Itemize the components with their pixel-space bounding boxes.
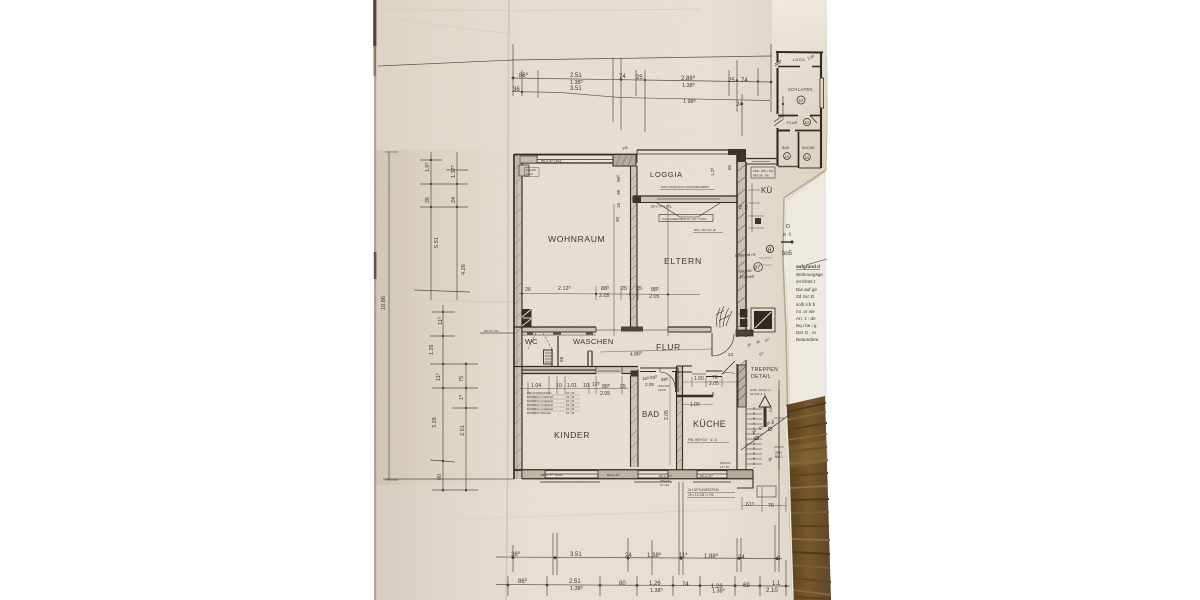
svg-text:1.00: 1.00	[694, 376, 704, 382]
svg-text:10: 10	[583, 383, 589, 389]
svg-text:3.51: 3.51	[570, 552, 582, 558]
svg-text:DETAIL: DETAIL	[751, 374, 771, 380]
svg-text:985 OK. FB: 985 OK. FB	[753, 174, 769, 178]
svg-text:10: 10	[798, 98, 803, 103]
svg-text:5.51: 5.51	[434, 237, 440, 248]
svg-text:75: 75	[744, 205, 749, 210]
svg-text:15 / 41: 15 / 41	[566, 395, 575, 399]
svg-text:2.05: 2.05	[645, 382, 654, 387]
svg-text:bo5: bo5	[782, 251, 793, 257]
svg-text:2.51: 2.51	[569, 579, 581, 585]
svg-text:BR-H. 87⁵ HKOL: BR-H. 87⁵ HKOL	[541, 159, 562, 163]
svg-text:24: 24	[451, 197, 457, 203]
svg-text:KÜ: KÜ	[761, 186, 772, 195]
svg-text:BR-H. 87⁵ HKOL: BR-H. 87⁵ HKOL	[651, 205, 672, 209]
svg-text:80: 80	[437, 474, 443, 480]
svg-text:WS + DO 12 / 20: WS + DO 12 / 20	[694, 228, 716, 232]
svg-text:BODBECH 4-GESCH: BODBECH 4-GESCH	[527, 407, 553, 411]
svg-text:BODBECH 2-GESCH: BODBECH 2-GESCH	[527, 399, 553, 403]
svg-text:86: 86	[770, 419, 775, 424]
svg-text:Bq i be i g: Bq i be i g	[796, 323, 817, 328]
svg-text:Bau9rd: Bau9rd	[738, 268, 751, 274]
svg-text:BAD: BAD	[782, 146, 790, 150]
svg-text:15 / 43: 15 / 43	[566, 403, 575, 407]
svg-text:2.05: 2.05	[600, 391, 610, 397]
svg-text:10.86: 10.86	[381, 296, 387, 310]
svg-text:LOGGIA: LOGGIA	[650, 170, 683, 179]
svg-text:aufgrund d: aufgrund d	[796, 264, 820, 269]
svg-text:BAD: BAD	[642, 410, 659, 419]
svg-text:25: 25	[620, 384, 626, 390]
svg-text:BODBECH 1-GESCH: BODBECH 1-GESCH	[527, 395, 553, 399]
svg-text:mi .or we: mi .or we	[796, 309, 815, 314]
svg-text:KÜCHE: KÜCHE	[693, 419, 726, 429]
svg-text:D: D	[786, 224, 790, 230]
svg-text:12 / 20: 12 / 20	[660, 483, 669, 487]
svg-text:SCHLAFEN: SCHLAFEN	[788, 87, 813, 92]
svg-text:87: 87	[754, 266, 760, 272]
svg-text:2.05: 2.05	[649, 294, 660, 300]
svg-text:KINDER: KINDER	[554, 430, 590, 440]
svg-text:10: 10	[804, 120, 809, 125]
svg-text:Zd zur Zi: Zd zur Zi	[796, 294, 814, 299]
svg-text:2.51: 2.51	[460, 425, 466, 436]
svg-text:AUFLAGERSTEIN 24 / 49 / 75 DG: AUFLAGERSTEIN 24 / 49 / 75 DG	[662, 217, 707, 221]
svg-text:12/20: 12/20	[658, 388, 666, 392]
svg-text:65: 65	[727, 164, 732, 170]
svg-text:Beaundere: Beaundere	[796, 337, 819, 342]
svg-text:BR-H. 87⁵: BR-H. 87⁵	[607, 473, 621, 477]
svg-text:24: 24	[736, 102, 743, 108]
svg-text:1.01: 1.01	[567, 383, 577, 389]
svg-text:2.05: 2.05	[664, 410, 670, 420]
svg-text:Der G . m: Der G . m	[796, 330, 816, 335]
svg-text:16: 16	[616, 202, 621, 208]
svg-text:26: 26	[525, 287, 531, 293]
svg-text:WASCHEN: WASCHEN	[573, 337, 614, 346]
svg-text:3.26: 3.26	[432, 417, 438, 428]
svg-text:96: 96	[559, 356, 565, 362]
svg-text:FLUR: FLUR	[787, 120, 798, 125]
svg-text:BODBECH DACHG: BODBECH DACHG	[527, 411, 551, 415]
svg-text:Die auf ge: Die auf ge	[796, 287, 817, 292]
svg-text:75: 75	[459, 376, 465, 382]
svg-text:FBO M ERDGESCH: FBO M ERDGESCH	[527, 391, 552, 395]
svg-text:36: 36	[513, 87, 520, 93]
svg-text:LOGG.: LOGG.	[793, 58, 807, 62]
svg-text:69: 69	[743, 583, 750, 589]
svg-text:75: 75	[738, 204, 743, 210]
svg-text:25: 25	[636, 286, 642, 292]
svg-text:sollt ich b: sollt ich b	[796, 302, 816, 307]
svg-text:12/20: 12/20	[526, 172, 533, 176]
svg-text:BR-H. 87⁵: BR-H. 87⁵	[659, 474, 673, 478]
svg-text:1.06: 1.06	[690, 402, 700, 408]
svg-text:BR-H. 87⁵: BR-H. 87⁵	[700, 474, 714, 478]
svg-text:3.51: 3.51	[570, 86, 582, 92]
svg-text:25: 25	[621, 286, 627, 292]
svg-text:1.1: 1.1	[772, 581, 781, 587]
svg-text:Prüfstell: Prüfstell	[740, 274, 755, 280]
svg-text:26 CM U. S: 26 CM U. S	[750, 392, 766, 396]
svg-text:NACHTRÄGLICH UNTERMAUERN: NACHTRÄGLICH UNTERMAUERN	[661, 185, 709, 189]
svg-text:WC: WC	[525, 337, 538, 346]
svg-text:1.26: 1.26	[429, 345, 435, 356]
svg-text:An. 1 : de: An. 1 : de	[796, 316, 816, 321]
svg-text:15 / 40: 15 / 40	[566, 391, 575, 395]
svg-text:BM 1: BM 1	[775, 455, 783, 459]
svg-text:50: 50	[615, 216, 620, 222]
svg-text:24: 24	[738, 555, 745, 561]
svg-text:2x LÜFTUNGSSTEIN: 2x LÜFTUNGSSTEIN	[688, 488, 720, 492]
svg-text:25: 25	[636, 75, 643, 81]
svg-text:DO 12 / 20: DO 12 / 20	[484, 329, 498, 333]
svg-text:2.10: 2.10	[766, 588, 778, 594]
svg-text:1.04: 1.04	[531, 383, 541, 389]
svg-text:36: 36	[616, 189, 621, 195]
svg-text:51: 51	[768, 407, 773, 412]
svg-text:e t: e t	[783, 232, 791, 238]
svg-text:FBL WS+DO 6 / 8: FBL WS+DO 6 / 8	[688, 438, 717, 442]
svg-text:74: 74	[682, 582, 689, 588]
svg-text:25: 25	[728, 78, 735, 84]
svg-text:76: 76	[768, 503, 774, 509]
svg-text:26: 26	[425, 197, 431, 203]
svg-text:WOHNRAUM: WOHNRAUM	[548, 234, 605, 244]
svg-text:1.26: 1.26	[649, 581, 661, 587]
svg-text:80: 80	[619, 581, 626, 587]
svg-text:BODBECH 3-GESCH: BODBECH 3-GESCH	[527, 403, 553, 407]
svg-text:ELTERN: ELTERN	[664, 256, 702, 266]
svg-text:10: 10	[804, 155, 809, 160]
svg-text:74: 74	[741, 78, 748, 84]
svg-text:10: 10	[784, 154, 789, 159]
svg-text:15 / 45: 15 / 45	[566, 411, 575, 415]
svg-text:BR-H. 87⁵ HKOL: BR-H. 87⁵ HKOL	[541, 473, 563, 477]
svg-text:KÜCHE: KÜCHE	[802, 146, 815, 150]
svg-text:FBO. WS + DO: FBO. WS + DO	[753, 169, 774, 173]
svg-text:15 / 42: 15 / 42	[566, 399, 575, 403]
svg-text:25 x 13 CM O. FB: 25 x 13 CM O. FB	[688, 493, 714, 497]
svg-text:15 / 44: 15 / 44	[566, 407, 575, 411]
svg-text:74: 74	[619, 74, 626, 80]
svg-text:4.26: 4.26	[461, 264, 467, 275]
svg-text:24: 24	[728, 352, 734, 358]
svg-text:12 / 20: 12 / 20	[720, 465, 729, 469]
svg-text:Wohnungsge: Wohnungsge	[796, 272, 823, 277]
svg-text:TREPPEN: TREPPEN	[751, 367, 778, 373]
svg-text:errichtet t: errichtet t	[796, 279, 816, 284]
svg-text:24: 24	[625, 553, 632, 559]
